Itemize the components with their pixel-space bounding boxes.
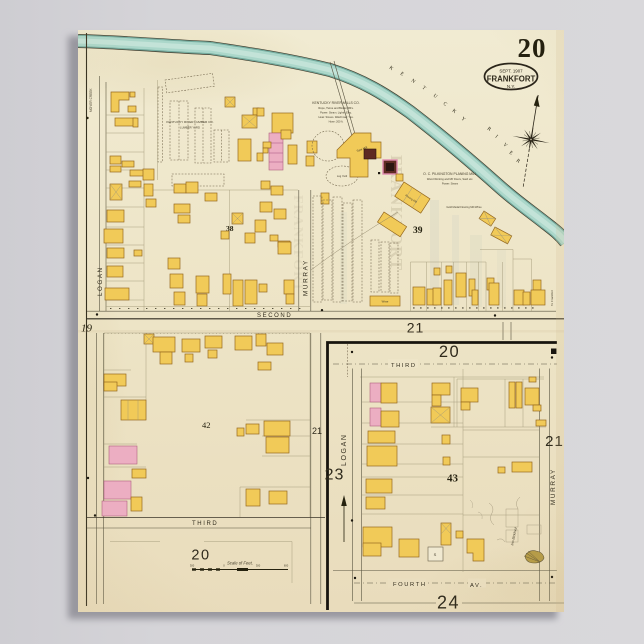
svg-text:20: 20 (518, 33, 547, 63)
svg-text:N.Y.: N.Y. (507, 84, 515, 89)
svg-text:SEPT. 1907: SEPT. 1907 (499, 69, 523, 74)
svg-text:FRANKFORT: FRANKFORT (487, 75, 536, 84)
